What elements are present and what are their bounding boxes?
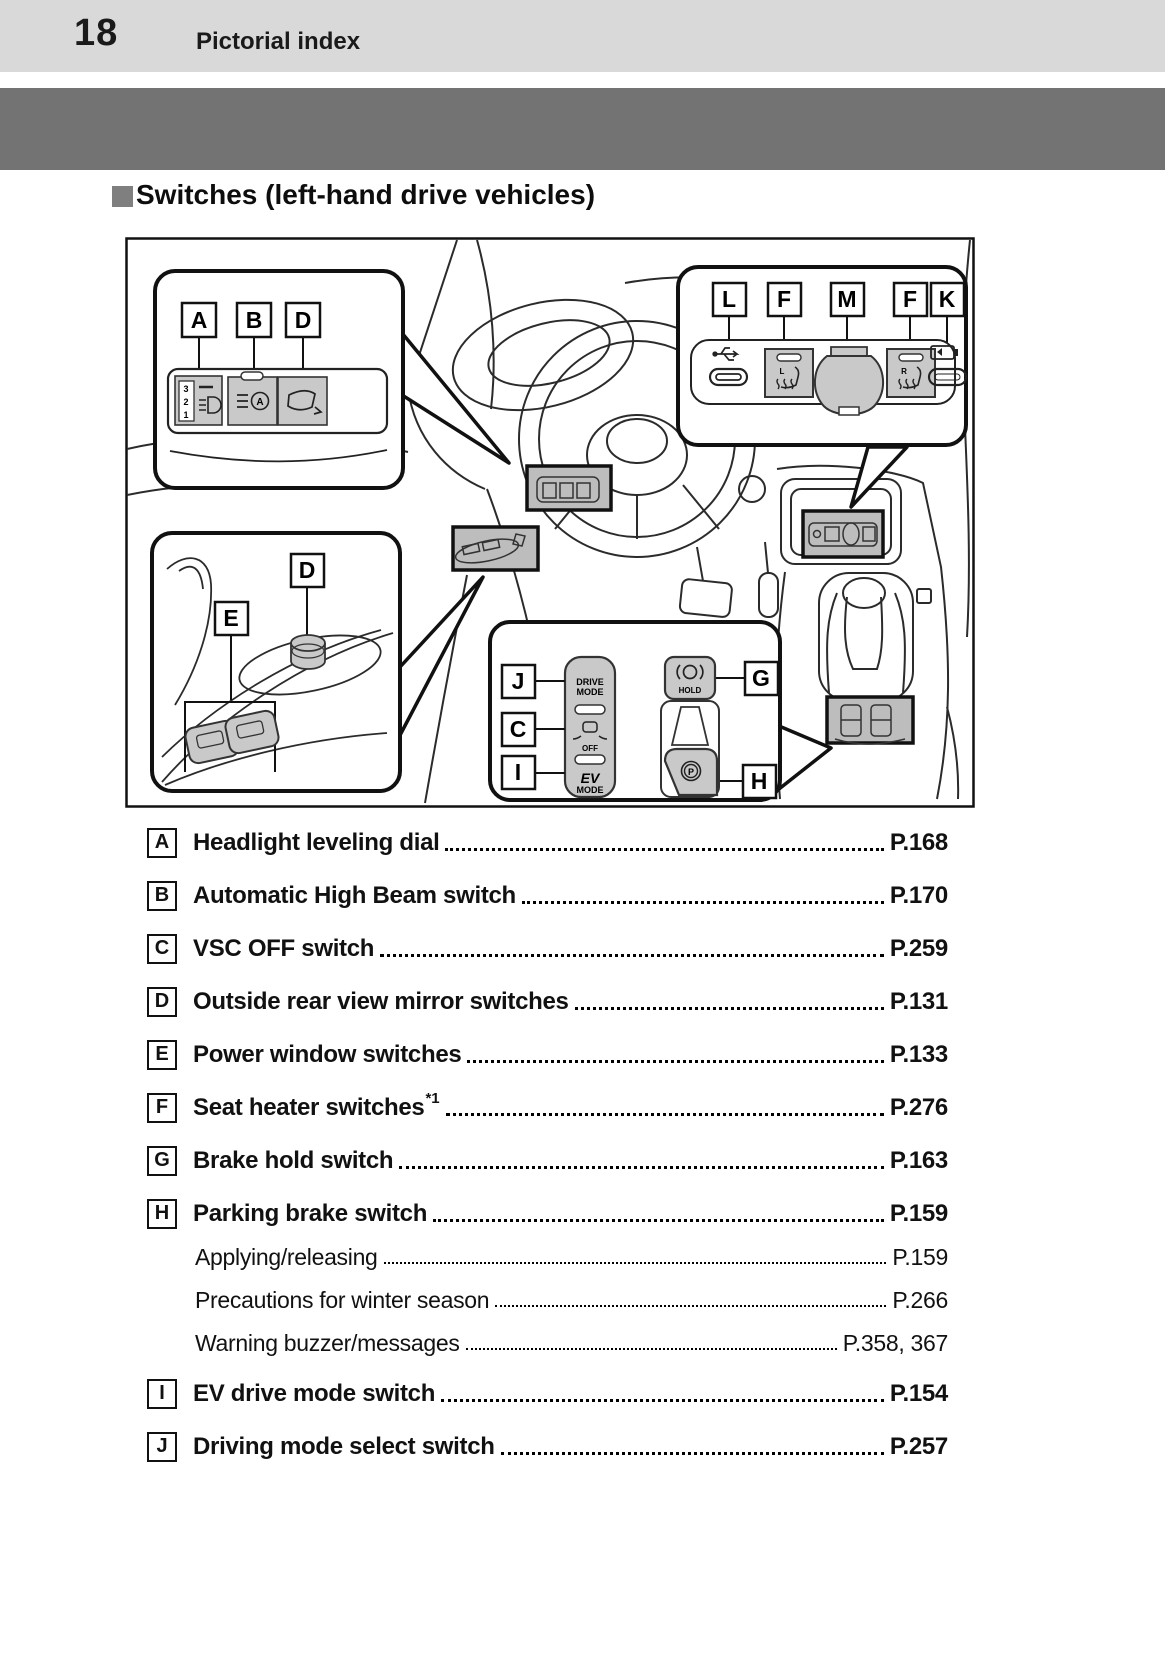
svg-text:EV: EV	[581, 770, 601, 786]
switches-diagram-svg: A B D 3 2 1 A	[125, 237, 975, 808]
index-tag-I: I	[147, 1379, 177, 1409]
dot-leader	[466, 1348, 837, 1350]
index-title: Power window switches	[193, 1041, 461, 1069]
index-page-ref: P.358, 367	[843, 1330, 948, 1357]
index-title: Automatic High Beam switch	[193, 882, 516, 910]
svg-text:L: L	[780, 367, 785, 376]
svg-text:2: 2	[183, 397, 188, 407]
dot-leader	[380, 954, 884, 957]
index-row-E: E Power window switches P.133	[147, 1039, 948, 1070]
index-title: Driving mode select switch	[193, 1433, 495, 1461]
index-title: Precautions for winter season	[195, 1287, 489, 1314]
label-E: E	[223, 605, 238, 631]
label-C: C	[510, 716, 527, 742]
index-title: Applying/releasing	[195, 1244, 378, 1271]
section-title: Pictorial index	[196, 28, 360, 56]
svg-text:R: R	[901, 367, 907, 376]
index-page-ref: P.163	[890, 1147, 948, 1175]
index-page-ref: P.133	[890, 1041, 948, 1069]
index-title: Headlight leveling dial	[193, 829, 439, 857]
svg-text:3: 3	[183, 384, 188, 394]
footnote-marker: *1	[425, 1090, 439, 1107]
dot-leader	[467, 1060, 883, 1063]
callout-console: DRIVE MODE OFF EV MODE J C I HOLD	[490, 622, 780, 800]
label-J: J	[512, 668, 525, 694]
index-tag-E: E	[147, 1040, 177, 1070]
label-H: H	[751, 768, 768, 794]
mirror-switch-cell	[278, 377, 327, 425]
header-bar: 18 Pictorial index	[0, 0, 1165, 72]
label-A: A	[191, 307, 208, 333]
seat-heater-right-switch: R	[887, 349, 935, 397]
index-subrow-winter: Precautions for winter season P.266	[147, 1285, 948, 1315]
highlight-lower-dash-switches	[527, 466, 611, 510]
switches-diagram: A B D 3 2 1 A	[125, 237, 975, 808]
dot-leader	[399, 1166, 884, 1169]
dot-leader	[446, 1113, 884, 1116]
label-G: G	[752, 665, 770, 691]
dot-leader	[501, 1452, 884, 1455]
label-F2: F	[903, 286, 917, 312]
index-tag-H: H	[147, 1199, 177, 1229]
label-D: D	[295, 307, 312, 333]
index-tag-F: F	[147, 1093, 177, 1123]
index-page-ref: P.168	[890, 829, 948, 857]
index-tag-D: D	[147, 987, 177, 1017]
callout-top-right: L F M F K L	[678, 267, 966, 445]
index-page-ref: P.276	[890, 1094, 948, 1122]
seat-heater-left-switch: L	[765, 349, 813, 397]
index-title: Seat heater switches	[193, 1094, 424, 1122]
label-D-door: D	[299, 557, 316, 583]
label-B: B	[246, 307, 263, 333]
callout-top-left: A B D 3 2 1 A	[155, 271, 403, 488]
label-M: M	[837, 286, 856, 312]
index-row-J: J Driving mode select switch P.257	[147, 1431, 948, 1462]
index-title: Parking brake switch	[193, 1200, 427, 1228]
svg-text:MODE: MODE	[577, 687, 604, 697]
brake-hold-switch: HOLD	[665, 657, 715, 699]
index-page-ref: P.159	[890, 1200, 948, 1228]
index-page-ref: P.170	[890, 882, 948, 910]
highlight-center-stack-panel	[803, 511, 883, 557]
callout-door: D E	[152, 533, 400, 791]
page-number: 18	[74, 12, 118, 55]
dot-leader	[522, 901, 884, 904]
label-I: I	[515, 759, 521, 785]
index-tag-G: G	[147, 1146, 177, 1176]
index-subrow-applying: Applying/releasing P.159	[147, 1242, 948, 1272]
heading-text: Switches (left-hand drive vehicles)	[136, 179, 595, 211]
mirror-control-knob	[291, 635, 325, 669]
svg-text:MODE: MODE	[577, 785, 604, 795]
index-title: Brake hold switch	[193, 1147, 393, 1175]
page-heading: Switches (left-hand drive vehicles)	[112, 179, 595, 211]
index-title: VSC OFF switch	[193, 935, 374, 963]
label-L: L	[722, 286, 736, 312]
auto-high-beam-switch: A	[228, 372, 277, 425]
index-row-G: G Brake hold switch P.163	[147, 1145, 948, 1176]
svg-text:1: 1	[183, 410, 188, 420]
index-row-I: I EV drive mode switch P.154	[147, 1378, 948, 1409]
index-row-B: B Automatic High Beam switch P.170	[147, 880, 948, 911]
dot-leader	[575, 1007, 884, 1010]
headlight-leveling-dial: 3 2 1	[175, 376, 222, 425]
index-page-ref: P.257	[890, 1433, 948, 1461]
index-subrow-warning: Warning buzzer/messages P.358, 367	[147, 1328, 948, 1358]
index-title: Outside rear view mirror switches	[193, 988, 569, 1016]
index-page-ref: P.154	[890, 1380, 948, 1408]
index-title: EV drive mode switch	[193, 1380, 435, 1408]
dot-leader	[445, 848, 883, 851]
svg-text:OFF: OFF	[582, 744, 598, 753]
label-F1: F	[777, 286, 791, 312]
dot-leader	[384, 1262, 887, 1264]
heading-square-bullet	[112, 186, 133, 207]
index-row-A: A Headlight leveling dial P.168	[147, 827, 948, 858]
svg-text:DRIVE: DRIVE	[576, 677, 604, 687]
power-outlet-cover	[815, 347, 883, 415]
index-page-ref: P.259	[890, 935, 948, 963]
index-row-D: D Outside rear view mirror switches P.13…	[147, 986, 948, 1017]
pictorial-index-list: A Headlight leveling dial P.168 B Automa…	[147, 827, 948, 1484]
index-tag-C: C	[147, 934, 177, 964]
index-row-F: F Seat heater switches *1 P.276	[147, 1092, 948, 1123]
svg-text:HOLD: HOLD	[679, 686, 702, 695]
index-page-ref: P.266	[892, 1287, 948, 1314]
dot-leader	[441, 1399, 884, 1402]
highlight-console-switches	[827, 697, 913, 744]
index-tag-B: B	[147, 881, 177, 911]
index-row-H: H Parking brake switch P.159	[147, 1198, 948, 1229]
parking-brake-switch: P	[661, 701, 719, 797]
svg-text:P: P	[688, 767, 694, 777]
drive-mode-pod: DRIVE MODE OFF EV MODE	[565, 657, 615, 797]
chapter-band	[0, 88, 1165, 170]
dot-leader	[495, 1305, 886, 1307]
index-page-ref: P.131	[890, 988, 948, 1016]
svg-text:A: A	[256, 397, 263, 408]
index-tag-J: J	[147, 1432, 177, 1462]
index-page-ref: P.159	[892, 1244, 948, 1271]
label-K: K	[939, 286, 956, 312]
index-title: Warning buzzer/messages	[195, 1330, 460, 1357]
index-row-C: C VSC OFF switch P.259	[147, 933, 948, 964]
highlight-door-switches	[453, 527, 538, 570]
dot-leader	[433, 1219, 884, 1222]
index-tag-A: A	[147, 828, 177, 858]
